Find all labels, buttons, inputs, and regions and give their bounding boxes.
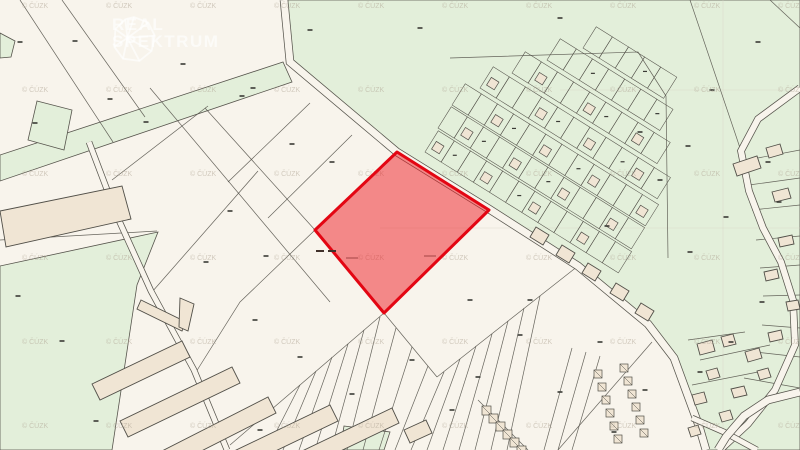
cuzk-watermark-text: © ČÚZK — [22, 421, 48, 430]
cuzk-watermark-text: © ČÚZK — [694, 169, 720, 178]
cuzk-watermark-text: © ČÚZK — [694, 85, 720, 94]
cuzk-watermark-text: © ČÚZK — [22, 253, 48, 262]
cuzk-watermark-text: © ČÚZK — [358, 1, 384, 10]
cuzk-watermark-text: © ČÚZK — [106, 421, 132, 430]
cuzk-watermark-text: © ČÚZK — [694, 253, 720, 262]
cuzk-watermark-text: © ČÚZK — [22, 1, 48, 10]
cuzk-watermark-text: © ČÚZK — [778, 85, 800, 94]
cuzk-watermark-text: © ČÚZK — [526, 421, 552, 430]
cuzk-watermark-text: © ČÚZK — [778, 1, 800, 10]
cuzk-watermark-text: © ČÚZK — [778, 253, 800, 262]
cuzk-watermark-text: © ČÚZK — [442, 253, 468, 262]
cuzk-watermark-text: © ČÚZK — [22, 169, 48, 178]
cuzk-watermark-text: © ČÚZK — [358, 421, 384, 430]
cuzk-watermark-text: © ČÚZK — [190, 1, 216, 10]
cuzk-watermark-text: © ČÚZK — [190, 169, 216, 178]
cuzk-watermark-text: © ČÚZK — [190, 85, 216, 94]
cuzk-watermark-text: © ČÚZK — [442, 421, 468, 430]
cuzk-watermark-text: © ČÚZK — [694, 1, 720, 10]
cuzk-watermark-text: © ČÚZK — [610, 337, 636, 346]
cuzk-watermark-text: © ČÚZK — [106, 337, 132, 346]
cuzk-watermark-text: © ČÚZK — [778, 337, 800, 346]
map-viewport[interactable]: © ČÚZK© ČÚZK© ČÚZK© ČÚZK© ČÚZK© ČÚZK© ČÚ… — [0, 0, 800, 450]
building — [786, 300, 800, 311]
cuzk-watermark-text: © ČÚZK — [694, 421, 720, 430]
cuzk-watermark-text: © ČÚZK — [22, 337, 48, 346]
cuzk-watermark-text: © ČÚZK — [274, 253, 300, 262]
cuzk-watermark-text: © ČÚZK — [358, 337, 384, 346]
cuzk-watermark-text: © ČÚZK — [610, 169, 636, 178]
cuzk-watermark-text: © ČÚZK — [778, 169, 800, 178]
cuzk-watermark-text: © ČÚZK — [526, 85, 552, 94]
cuzk-watermark-text: © ČÚZK — [358, 85, 384, 94]
cuzk-watermark-text: © ČÚZK — [274, 1, 300, 10]
cuzk-watermark-text: © ČÚZK — [778, 421, 800, 430]
cuzk-watermark-text: © ČÚZK — [442, 1, 468, 10]
cuzk-watermark-text: © ČÚZK — [22, 85, 48, 94]
cuzk-watermark-text: © ČÚZK — [610, 1, 636, 10]
cuzk-watermark-text: © ČÚZK — [274, 421, 300, 430]
cuzk-watermark-text: © ČÚZK — [442, 85, 468, 94]
cuzk-watermark-text: © ČÚZK — [190, 337, 216, 346]
cuzk-watermark-text: © ČÚZK — [610, 85, 636, 94]
cuzk-watermark-text: © ČÚZK — [106, 85, 132, 94]
cuzk-watermark-text: © ČÚZK — [526, 253, 552, 262]
cuzk-watermark-text: © ČÚZK — [274, 85, 300, 94]
cuzk-watermark-text: © ČÚZK — [106, 169, 132, 178]
cuzk-watermark-text: © ČÚZK — [610, 421, 636, 430]
cadastral-map: © ČÚZK© ČÚZK© ČÚZK© ČÚZK© ČÚZK© ČÚZK© ČÚ… — [0, 0, 800, 450]
cuzk-watermark-text: © ČÚZK — [442, 169, 468, 178]
cuzk-watermark-text: © ČÚZK — [106, 253, 132, 262]
cuzk-watermark-text: © ČÚZK — [190, 421, 216, 430]
cuzk-watermark-text: © ČÚZK — [190, 253, 216, 262]
cuzk-watermark-text: © ČÚZK — [526, 337, 552, 346]
cuzk-watermark-text: © ČÚZK — [526, 169, 552, 178]
cuzk-watermark-text: © ČÚZK — [694, 337, 720, 346]
cuzk-watermark-text: © ČÚZK — [106, 1, 132, 10]
cuzk-watermark-text: © ČÚZK — [610, 253, 636, 262]
cuzk-watermark-text: © ČÚZK — [442, 337, 468, 346]
cuzk-watermark-text: © ČÚZK — [526, 1, 552, 10]
cuzk-watermark-text: © ČÚZK — [274, 337, 300, 346]
cuzk-watermark-text: © ČÚZK — [274, 169, 300, 178]
